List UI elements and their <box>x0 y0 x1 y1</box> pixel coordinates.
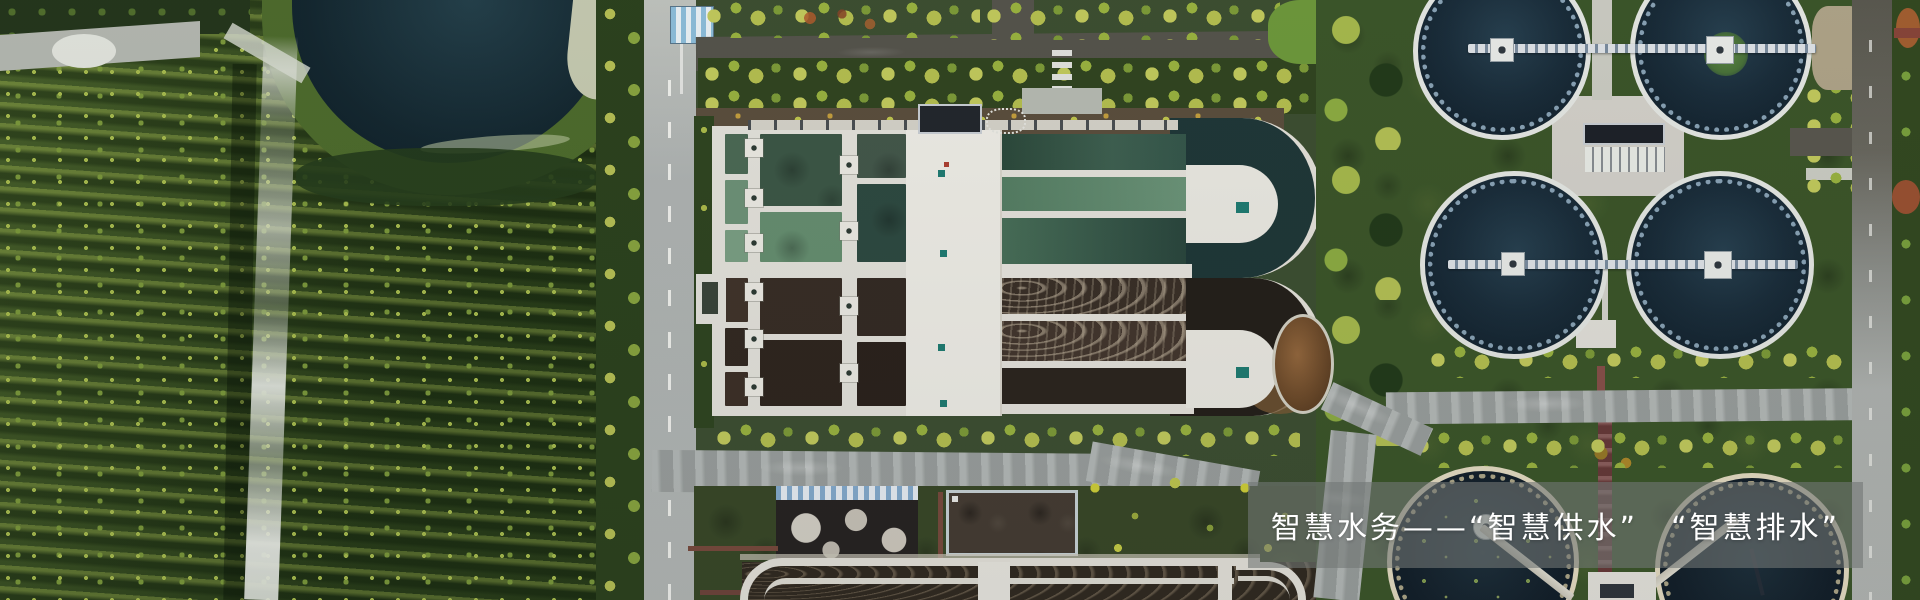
bottom-oxidation-basins <box>740 554 1320 600</box>
basin-cell-dark <box>857 278 906 336</box>
center-drive-platform <box>1706 36 1734 64</box>
channel-divider <box>1002 314 1186 321</box>
road-center-line <box>668 80 671 600</box>
channel-end-cap <box>1186 165 1278 243</box>
channel-separator-wide <box>1002 264 1192 278</box>
cross-road <box>1386 388 1920 425</box>
white-pipe <box>986 108 1026 134</box>
basin-cell-dark <box>760 278 842 334</box>
basin-cell <box>857 134 906 178</box>
channel-divider <box>1002 170 1186 177</box>
tree-row <box>980 0 1280 40</box>
walkway-node <box>840 222 858 240</box>
rooftop-unit <box>952 496 958 502</box>
basin-cell <box>760 212 842 262</box>
walkway-node <box>745 234 763 252</box>
orange-tree <box>1892 180 1920 214</box>
drive-motor <box>1236 367 1249 378</box>
basin-bottom-wall <box>1002 404 1194 414</box>
channel-end-cap <box>1186 330 1278 408</box>
autumn-trees <box>790 2 890 36</box>
channel-divider <box>1002 361 1186 368</box>
center-drive-platform <box>1490 38 1514 62</box>
hero-banner: 智慧水务——“智慧供水” “智慧排水” <box>0 0 1920 600</box>
center-drive-platform <box>1704 251 1732 279</box>
road-center-line <box>1869 40 1872 600</box>
brick-path <box>688 546 778 551</box>
equipment-dot <box>938 344 945 351</box>
small-roof-structure <box>918 104 982 134</box>
aeration-channel-green <box>1002 134 1186 170</box>
basin-divider <box>1218 564 1232 600</box>
sludge-basin-roof-edge <box>776 486 918 500</box>
basin-cell <box>857 184 906 262</box>
walkway-node <box>745 139 763 157</box>
equipment-dot <box>940 250 947 257</box>
basin-cell-dark <box>760 340 842 406</box>
center-drive-platform <box>1501 252 1525 276</box>
concrete-pad <box>1022 88 1102 114</box>
central-building-roof <box>906 120 1002 416</box>
aeration-channel-green <box>1002 177 1186 211</box>
clarifier-bridge <box>1468 44 1816 53</box>
sludge-basin-foam <box>776 500 918 562</box>
caption-text: 智慧水务——“智慧供水” “智慧排水” <box>1271 503 1840 547</box>
grass-strip <box>694 116 714 428</box>
bush-band <box>296 148 596 206</box>
caption-overlay-panel: 智慧水务——“智慧供水” “智慧排水” <box>1248 482 1863 568</box>
equipment-dot-red <box>944 162 949 167</box>
aeration-channel-dark <box>1002 278 1186 314</box>
walkway-node <box>840 364 858 382</box>
aeration-channel-dark <box>1002 368 1186 404</box>
equipment-dot <box>940 400 947 407</box>
walkway-node <box>745 283 763 301</box>
walkway-node <box>745 378 763 396</box>
side-tank <box>696 274 726 324</box>
tree-row <box>1408 430 1852 468</box>
pump-equipment <box>1600 584 1634 598</box>
equipment-dot <box>938 170 945 177</box>
farmland-photo-region <box>0 0 652 600</box>
walkway-node <box>840 297 858 315</box>
pump-house-roof <box>1583 123 1665 145</box>
aeration-channel-green <box>1002 218 1186 264</box>
side-tank-water <box>702 282 718 314</box>
gate-barrier <box>680 44 683 94</box>
aeration-channel-dark-foamy <box>1002 321 1186 361</box>
basin-white-block <box>978 562 1010 600</box>
pump-house-colonnade <box>1585 147 1665 172</box>
treatment-plant-complex <box>712 118 1324 416</box>
sludge-thickener-tank <box>1272 314 1334 414</box>
channel-divider <box>1002 211 1186 218</box>
crosswalk-markings <box>1052 50 1072 90</box>
red-roof-structure <box>1894 28 1920 38</box>
basin-cell <box>760 134 842 206</box>
flat-roof-building <box>946 490 1078 556</box>
walkway-node <box>840 156 858 174</box>
walkway-node <box>745 189 763 207</box>
right-edge-vegetation <box>1892 0 1920 600</box>
farm-top-road-highlight <box>52 34 116 68</box>
drive-motor <box>1236 202 1249 213</box>
walkway-node <box>745 330 763 348</box>
basin-cell-dark <box>857 342 906 406</box>
